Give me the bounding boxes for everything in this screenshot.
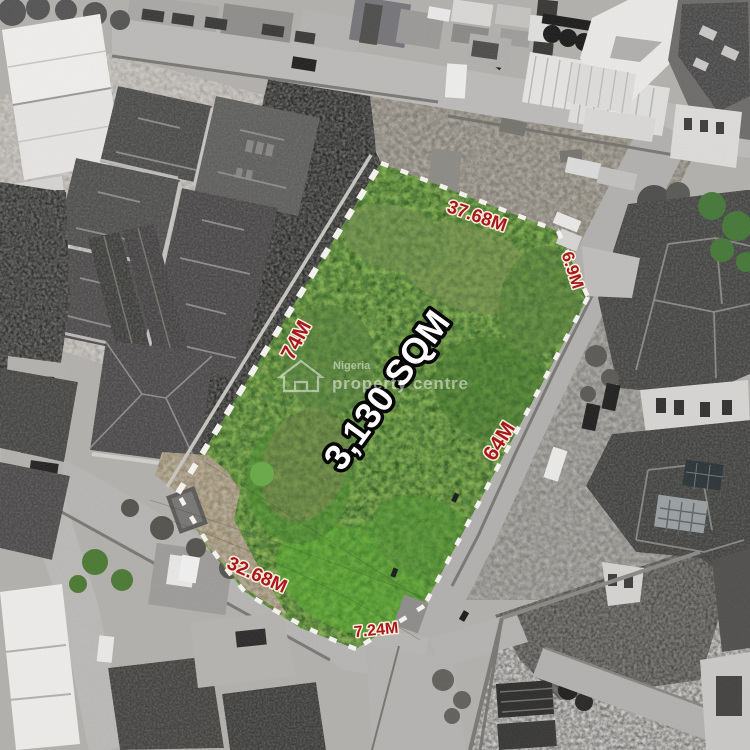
svg-text:Nigeria: Nigeria — [333, 360, 371, 372]
svg-text:property centre: property centre — [332, 374, 469, 393]
